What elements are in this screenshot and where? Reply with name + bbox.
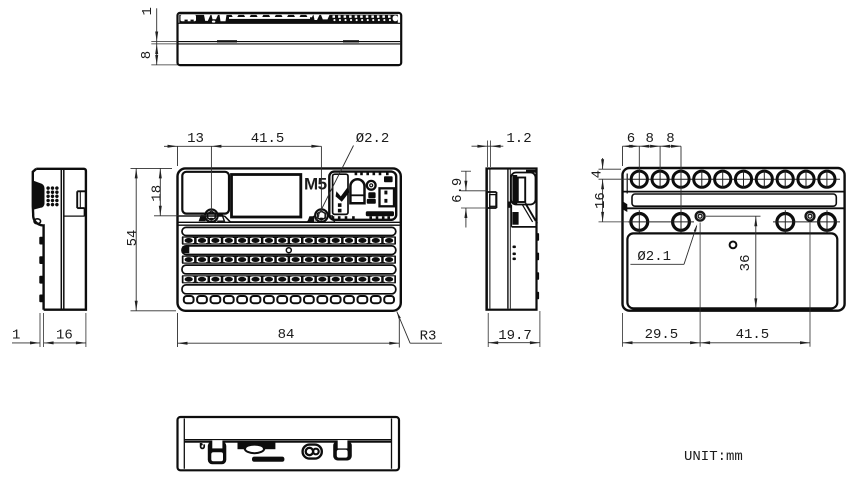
svg-text:6: 6 — [627, 131, 635, 147]
svg-text:18: 18 — [149, 185, 165, 202]
svg-text:R3: R3 — [420, 329, 437, 345]
svg-text:19.7: 19.7 — [498, 328, 532, 344]
svg-text:Ø2.2: Ø2.2 — [356, 131, 390, 147]
svg-text:8: 8 — [666, 131, 674, 147]
svg-text:29.5: 29.5 — [645, 327, 679, 343]
svg-text:16: 16 — [593, 192, 609, 209]
svg-text:8: 8 — [139, 51, 155, 59]
svg-text:54: 54 — [125, 230, 141, 247]
svg-text:8: 8 — [645, 131, 653, 147]
svg-text:1: 1 — [12, 328, 20, 344]
svg-text:13: 13 — [187, 131, 204, 147]
svg-text:84: 84 — [278, 327, 295, 343]
svg-text:16: 16 — [56, 327, 73, 343]
svg-text:36: 36 — [738, 254, 754, 271]
svg-text:UNIT:mm: UNIT:mm — [684, 449, 743, 465]
svg-text:1: 1 — [140, 7, 156, 15]
svg-text:41.5: 41.5 — [251, 131, 285, 147]
svg-text:6.9: 6.9 — [450, 178, 466, 203]
svg-text:41.5: 41.5 — [736, 327, 770, 343]
svg-text:4: 4 — [589, 170, 605, 178]
svg-text:M5: M5 — [304, 175, 327, 194]
svg-text:1.2: 1.2 — [506, 131, 531, 147]
svg-text:Ø2.1: Ø2.1 — [637, 249, 671, 265]
